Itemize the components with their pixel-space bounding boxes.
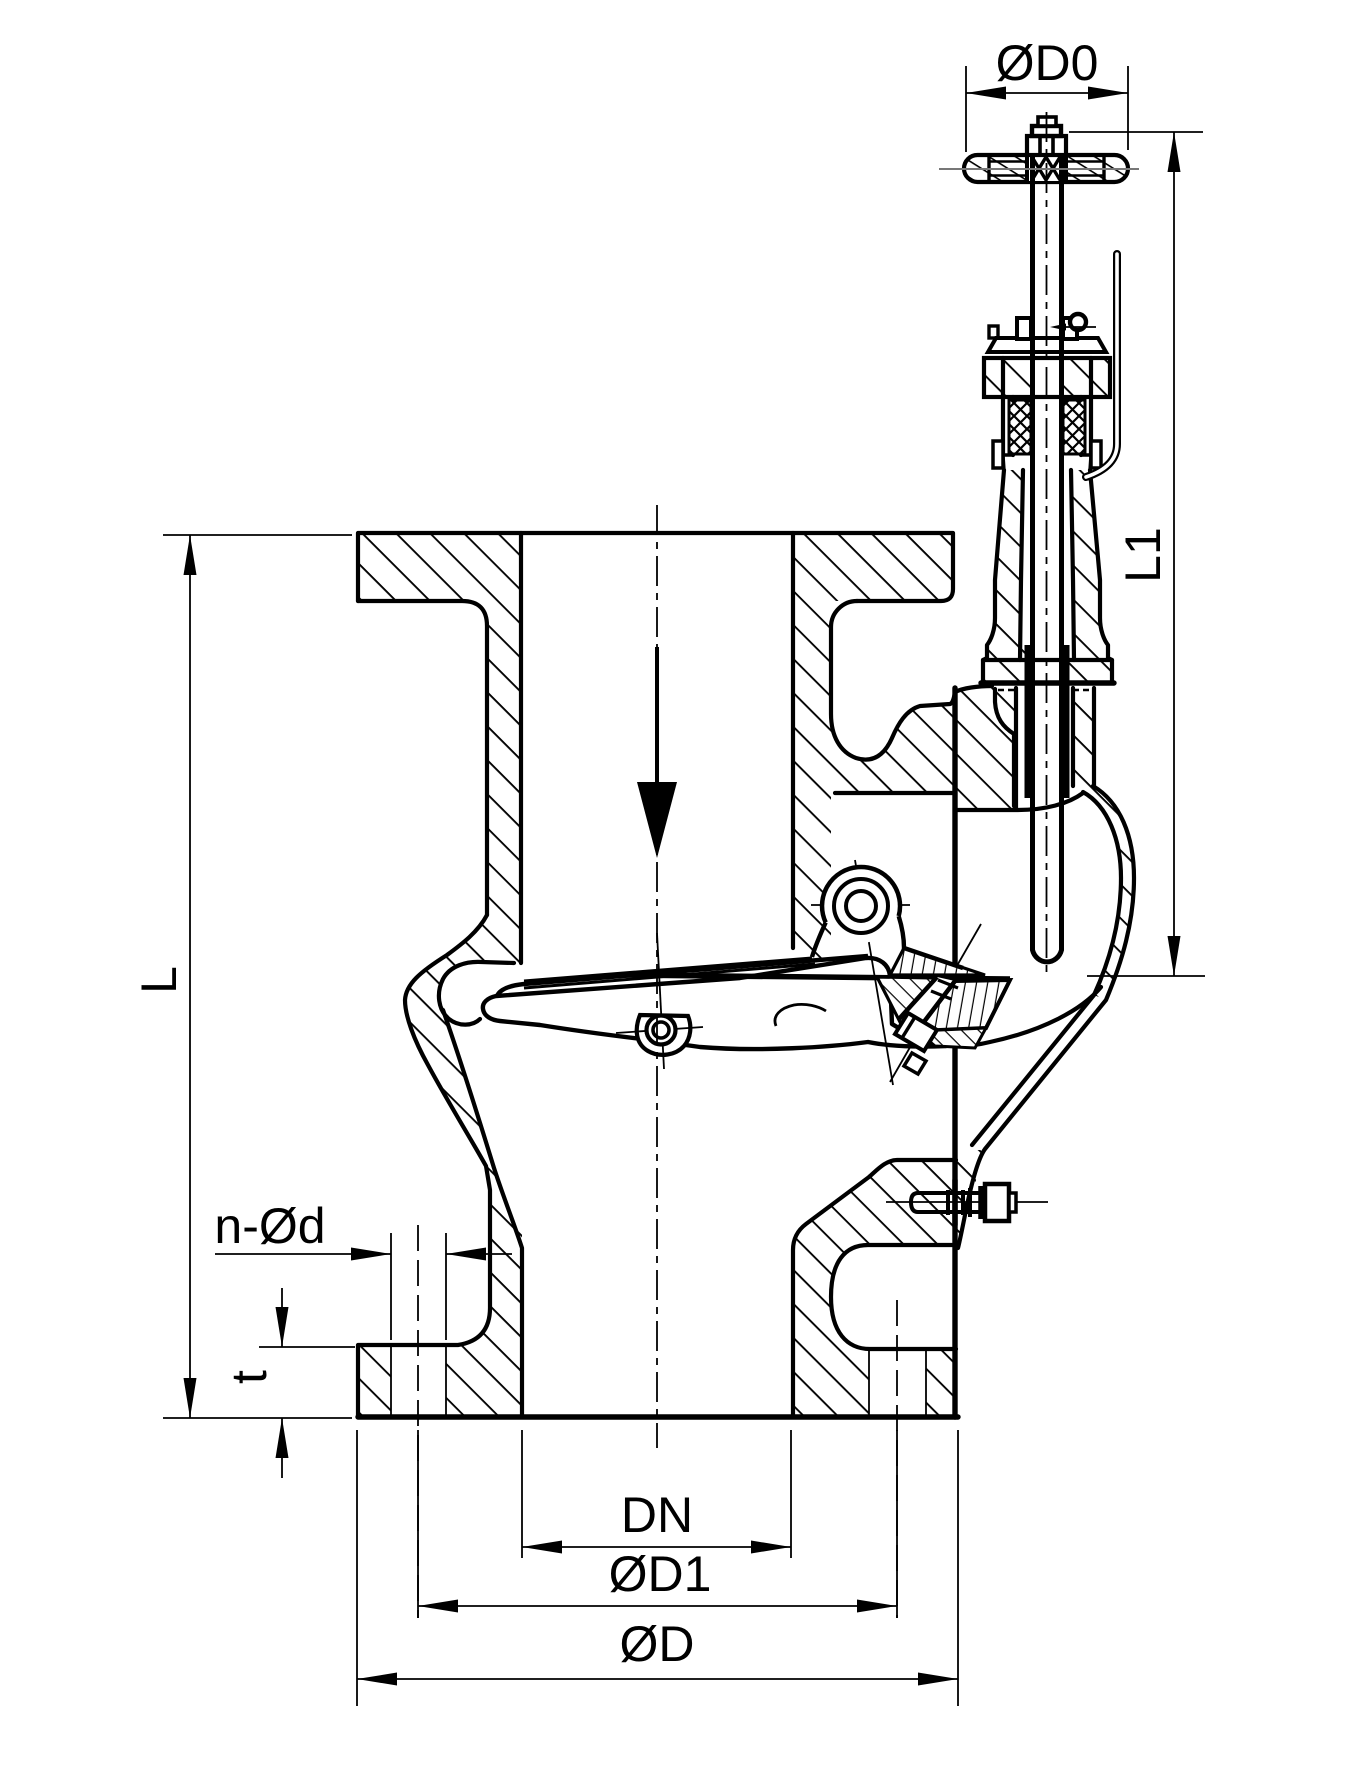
svg-text:L1: L1 bbox=[1115, 527, 1171, 583]
svg-text:DN: DN bbox=[621, 1487, 693, 1543]
svg-text:L: L bbox=[131, 966, 187, 994]
svg-text:t: t bbox=[221, 1370, 277, 1384]
svg-text:n-Ød: n-Ød bbox=[214, 1198, 325, 1254]
svg-text:ØD: ØD bbox=[620, 1616, 695, 1672]
svg-text:ØD1: ØD1 bbox=[609, 1546, 712, 1602]
svg-text:ØD0: ØD0 bbox=[996, 35, 1099, 91]
